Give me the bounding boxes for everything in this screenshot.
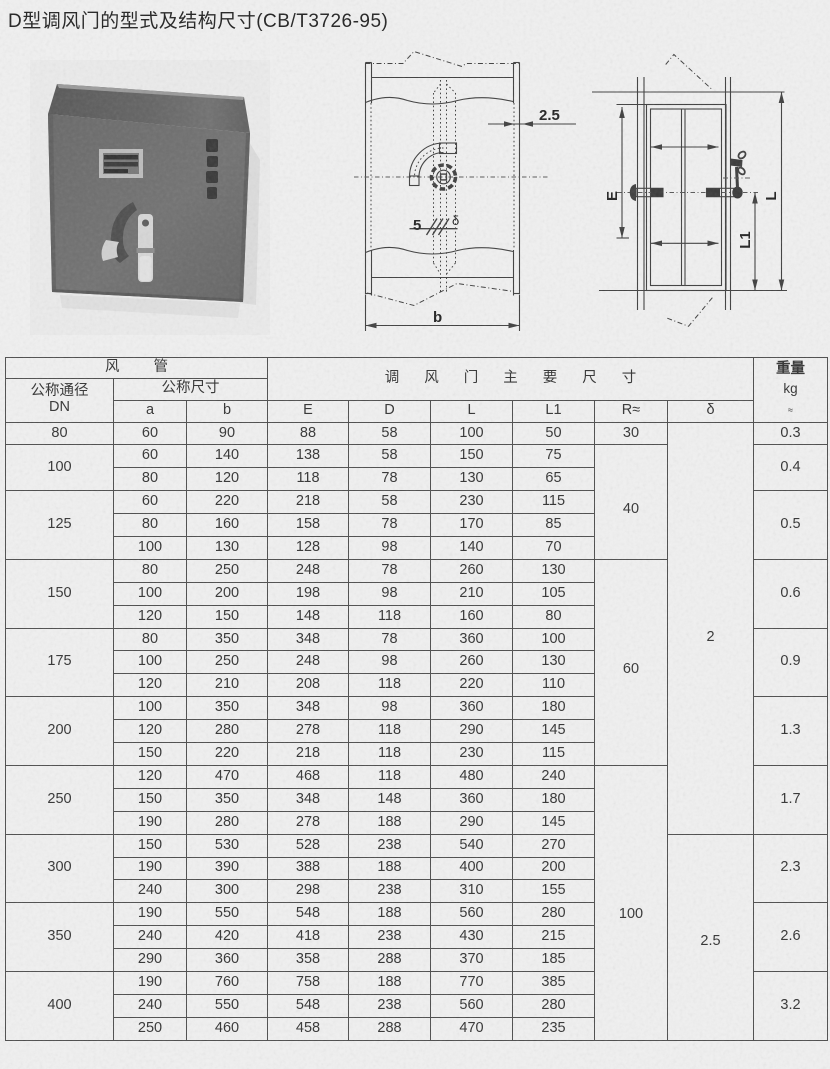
svg-text:5: 5 bbox=[413, 217, 421, 234]
svg-text:L1: L1 bbox=[737, 231, 754, 249]
svg-text:L: L bbox=[763, 191, 780, 200]
svg-text:E: E bbox=[604, 191, 621, 201]
svg-text:b: b bbox=[433, 309, 442, 326]
svg-text:2.5: 2.5 bbox=[539, 107, 560, 124]
svg-text:δ: δ bbox=[452, 213, 459, 228]
